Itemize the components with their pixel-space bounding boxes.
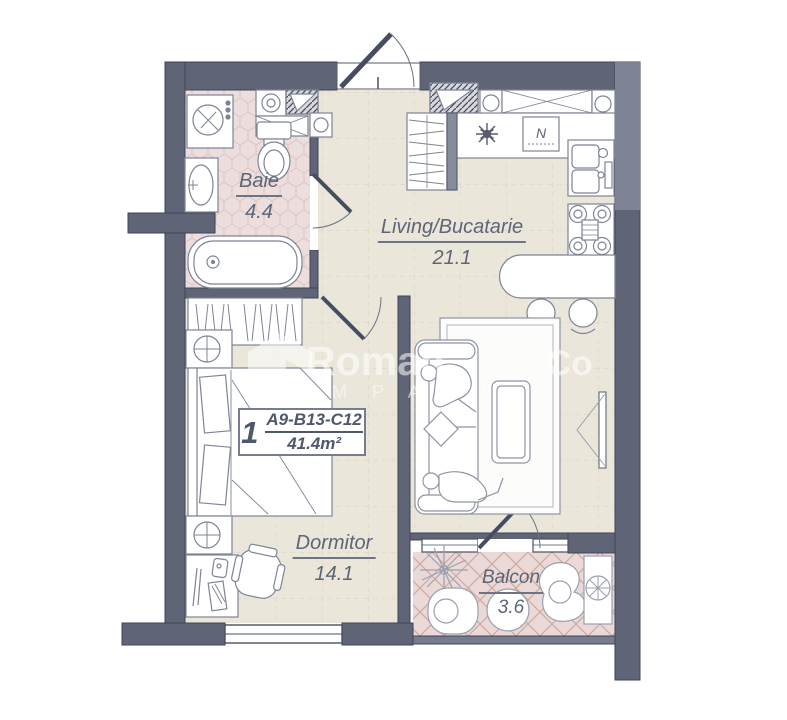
bottom-wall-left [122, 623, 225, 645]
right-wall-upper [615, 62, 640, 210]
room-name: Balcon [479, 568, 543, 594]
top-wall-left [165, 62, 337, 90]
ventilation-shaft-bath [286, 90, 318, 114]
floor-plan: N [0, 0, 787, 720]
washing-machine [187, 95, 233, 148]
bottom-wall-mid [342, 623, 413, 645]
left-wall [165, 62, 185, 645]
unit-area: 41.4m² [287, 433, 341, 454]
room-area: 3.6 [479, 594, 543, 619]
room-label-balcon: Balcon 3.6 [479, 568, 543, 619]
room-area: 21.1 [378, 243, 526, 269]
room-area: 4.4 [236, 197, 282, 223]
room-name: Living/Bucatarie [378, 216, 526, 243]
desk [186, 555, 238, 617]
upper-cabinet-long [502, 90, 592, 113]
nightstand-bottom [186, 516, 232, 554]
upper-cabinet-small [480, 90, 502, 116]
boiler-unit: N [523, 117, 559, 151]
room-name: Dormitor [293, 532, 376, 559]
balcony-rail [413, 636, 615, 644]
watermark-subtext: M P A N I [332, 382, 497, 403]
watermark-text-2: Co [546, 344, 593, 384]
room-label-living: Living/Bucatarie 21.1 [378, 216, 526, 269]
unit-number: 1 [241, 417, 258, 448]
balcony-window-left [422, 539, 478, 552]
bathroom-sink [185, 158, 218, 212]
watermark-text: Roman [306, 338, 445, 385]
bath-bottom-wall [185, 288, 318, 298]
entry-closet [407, 113, 457, 190]
balcony-window-right [533, 539, 568, 552]
bedroom-window [225, 625, 342, 643]
unit-code: A9-B13-C12 [265, 410, 362, 433]
stove [568, 204, 614, 256]
room-name: Baie [236, 170, 282, 197]
ac-unit [584, 556, 612, 624]
room-label-baie: Baie 4.4 [236, 170, 282, 223]
boiler [256, 90, 286, 116]
room-label-dormitor: Dormitor 14.1 [293, 532, 376, 585]
small-cabinet [310, 113, 332, 137]
boiler-label: N [536, 125, 547, 141]
balcony-chair-left [428, 588, 478, 634]
room-area: 14.1 [293, 559, 376, 585]
left-wall-extension [128, 213, 215, 233]
nightstand-top [186, 330, 232, 368]
kitchen-sink [568, 140, 614, 196]
balcony-pier [568, 533, 615, 553]
unit-info-box: 1 A9-B13-C12 41.4m² [238, 408, 366, 456]
bath-door-opening [310, 176, 318, 250]
bathtub [188, 236, 302, 288]
coffee-table [492, 381, 530, 463]
ventilation-shaft-kitchen [430, 83, 478, 113]
cooktop-hood-icon [476, 123, 498, 145]
